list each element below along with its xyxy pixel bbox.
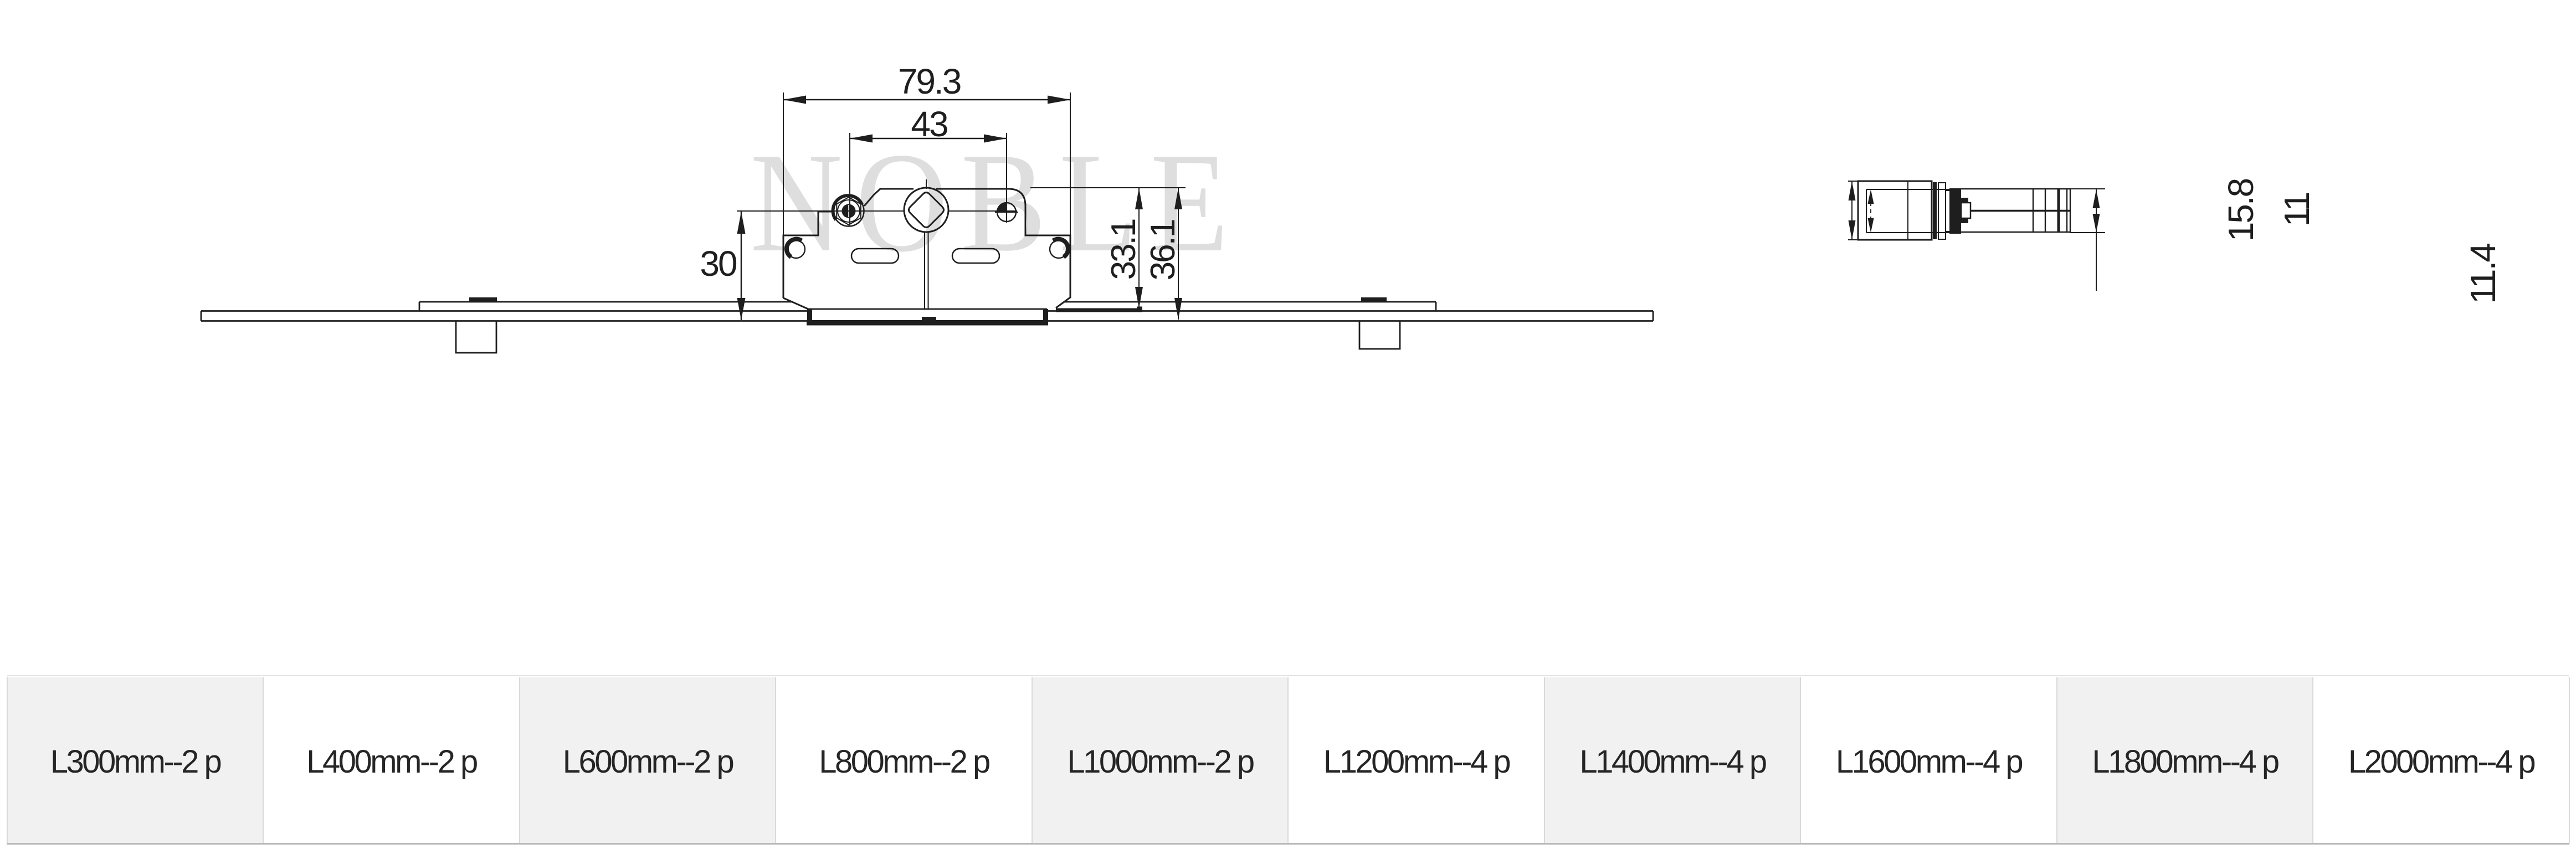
- svg-text:11: 11: [2277, 193, 2317, 227]
- svg-text:33.1: 33.1: [1105, 219, 1143, 280]
- svg-text:15.8: 15.8: [2221, 179, 2261, 241]
- svg-text:36.1: 36.1: [1144, 220, 1182, 280]
- svg-text:30: 30: [700, 244, 737, 284]
- svg-text:11.4: 11.4: [2463, 244, 2503, 304]
- svg-text:79.3: 79.3: [898, 61, 961, 101]
- svg-text:43: 43: [911, 104, 947, 144]
